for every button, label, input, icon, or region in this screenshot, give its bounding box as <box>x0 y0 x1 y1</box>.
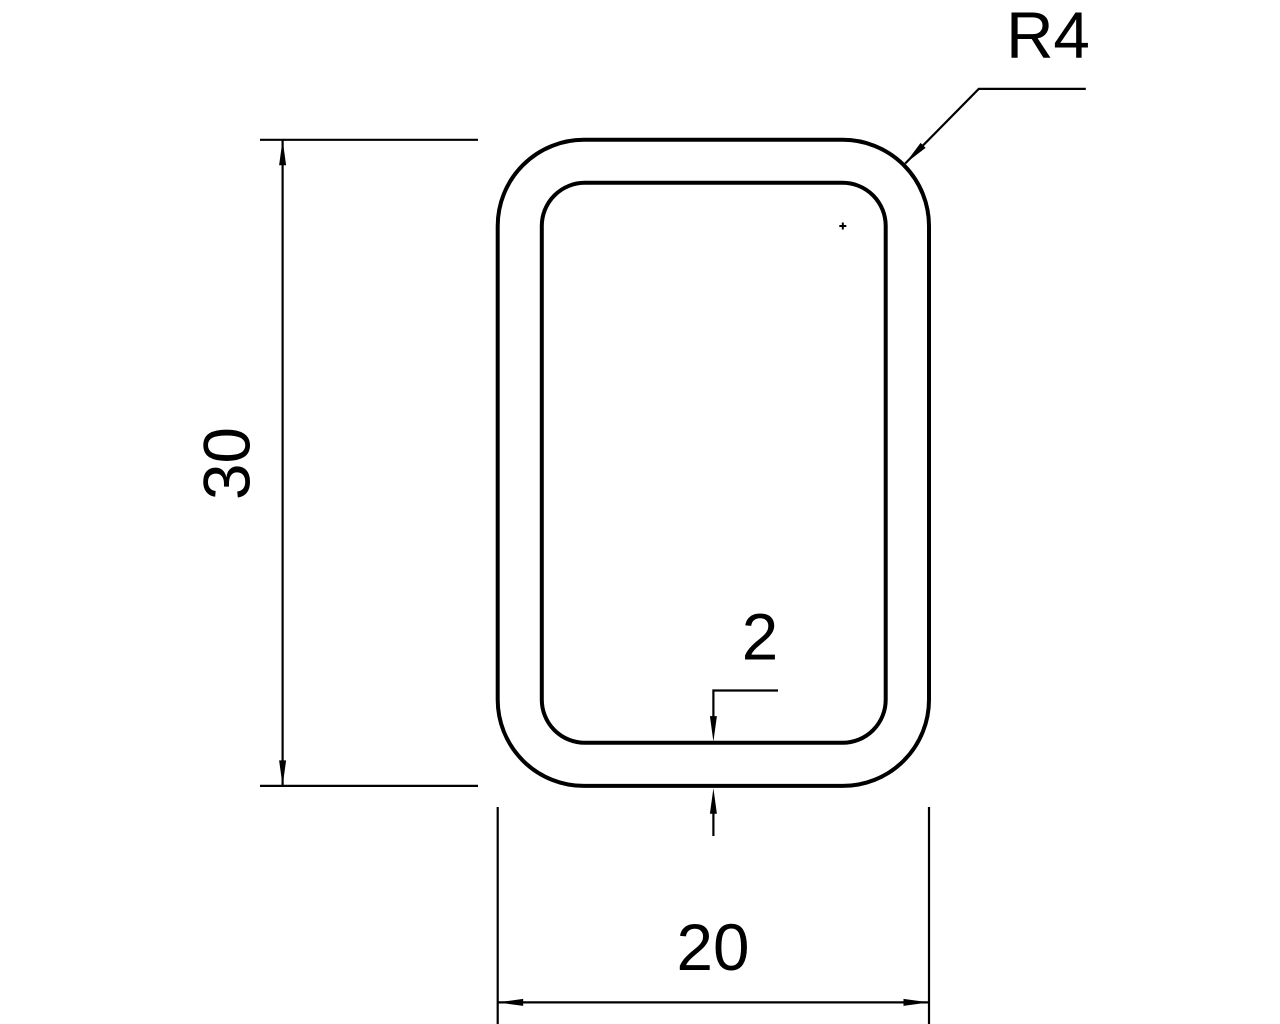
svg-text:20: 20 <box>677 911 750 984</box>
svg-text:2: 2 <box>742 601 778 674</box>
svg-text:30: 30 <box>191 427 264 500</box>
svg-text:R4: R4 <box>1006 0 1090 72</box>
